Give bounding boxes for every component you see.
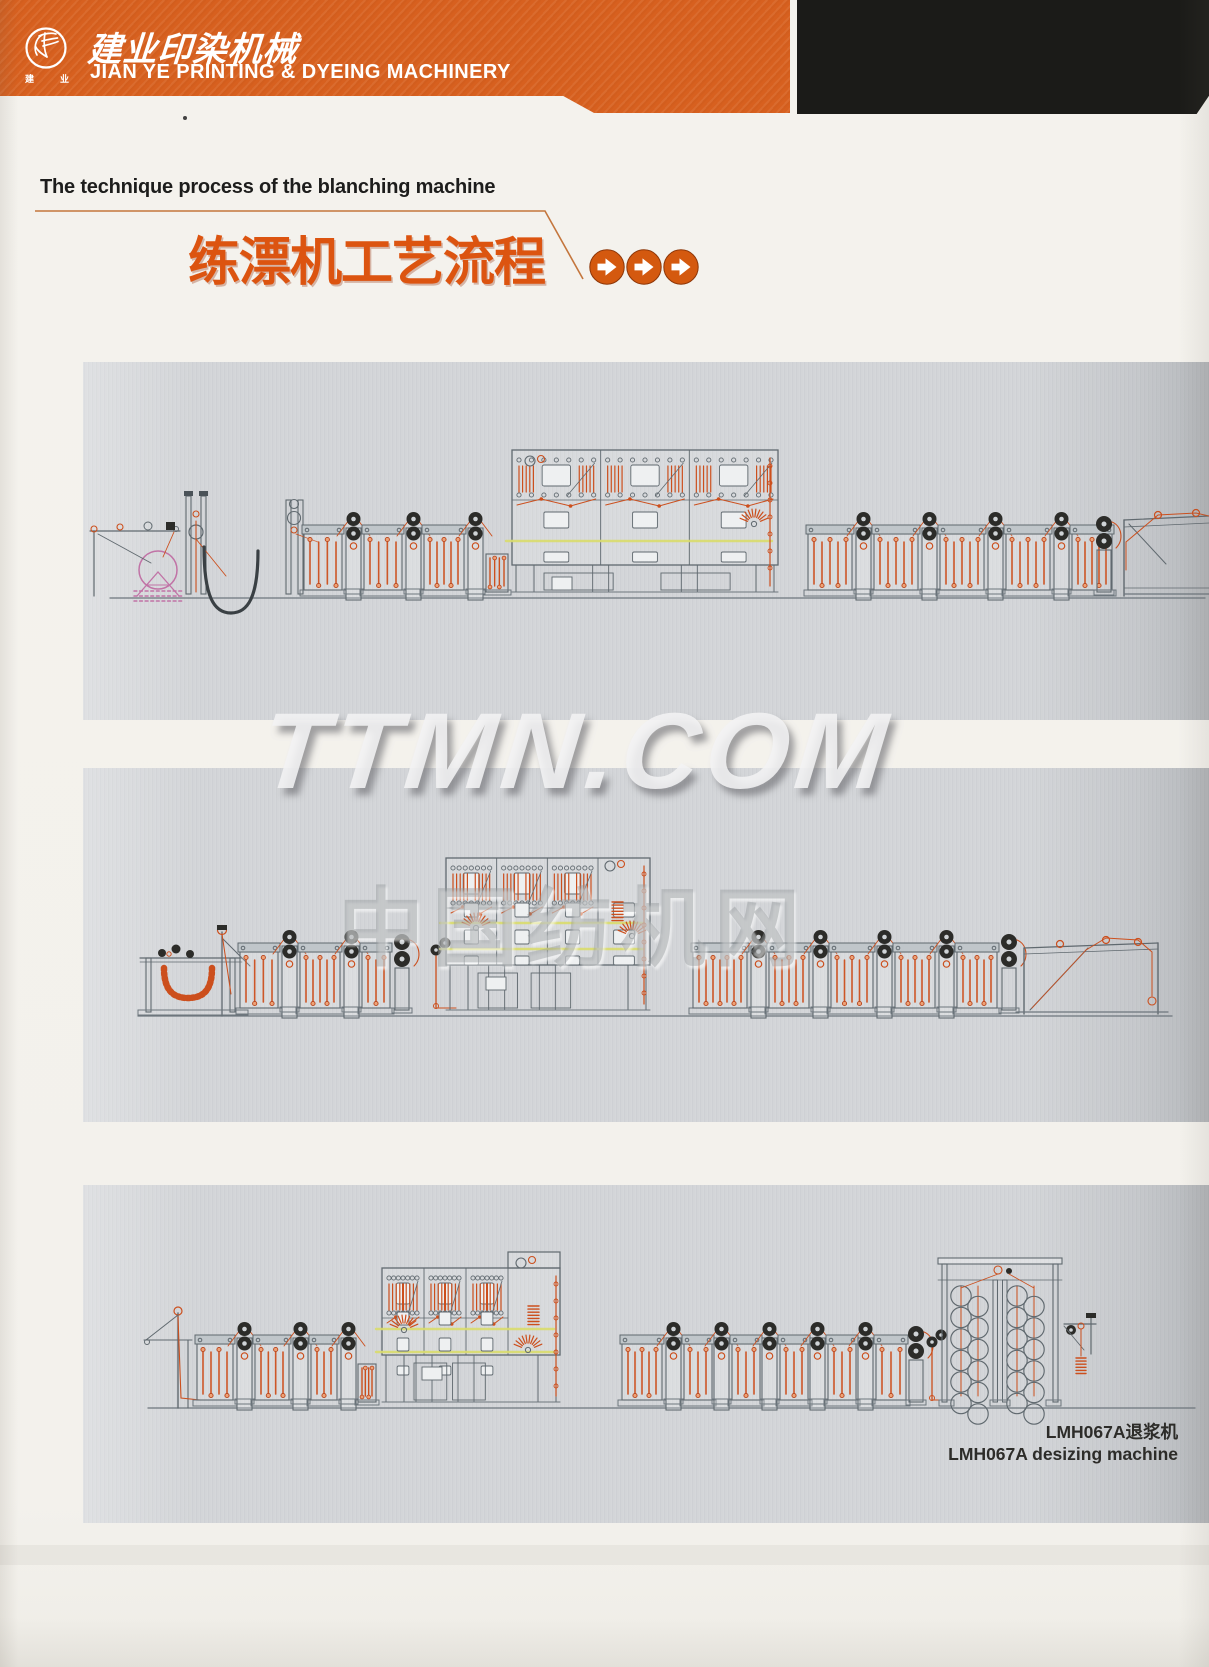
logo-char: 建 (25, 72, 34, 85)
logo-characters: 建 业 (25, 72, 69, 85)
company-name-en: JIAN YE PRINTING & DYEING MACHINERY (90, 61, 511, 84)
logo-char: 业 (60, 72, 69, 85)
catalog-page: 建 业 建业印染机械 JIAN YE PRINTING & DYEING MAC… (0, 0, 1209, 1667)
header-orange-band: 建 业 建业印染机械 JIAN YE PRINTING & DYEING MAC… (0, 0, 790, 113)
process-diagram-panel-3 (83, 1185, 1209, 1523)
caption-en: LMH067A desizing machine (948, 1443, 1178, 1465)
page-title-zh: 练漂机工艺流程 (188, 220, 545, 295)
scan-shade-band (0, 1545, 1209, 1565)
caption-zh: LMH067A退浆机 (948, 1421, 1178, 1443)
watermark-latin: TTMN.COM (255, 688, 898, 813)
ink-dot (183, 116, 187, 120)
machine-caption: LMH067A退浆机 LMH067A desizing machine (948, 1421, 1178, 1465)
company-logo-icon (22, 24, 70, 72)
watermark-zh: 中国纺机网 (338, 858, 808, 983)
header-black-block (797, 0, 1209, 114)
process-diagram-panel-1 (83, 362, 1209, 720)
page-title-en: The technique process of the blanching m… (40, 176, 495, 199)
